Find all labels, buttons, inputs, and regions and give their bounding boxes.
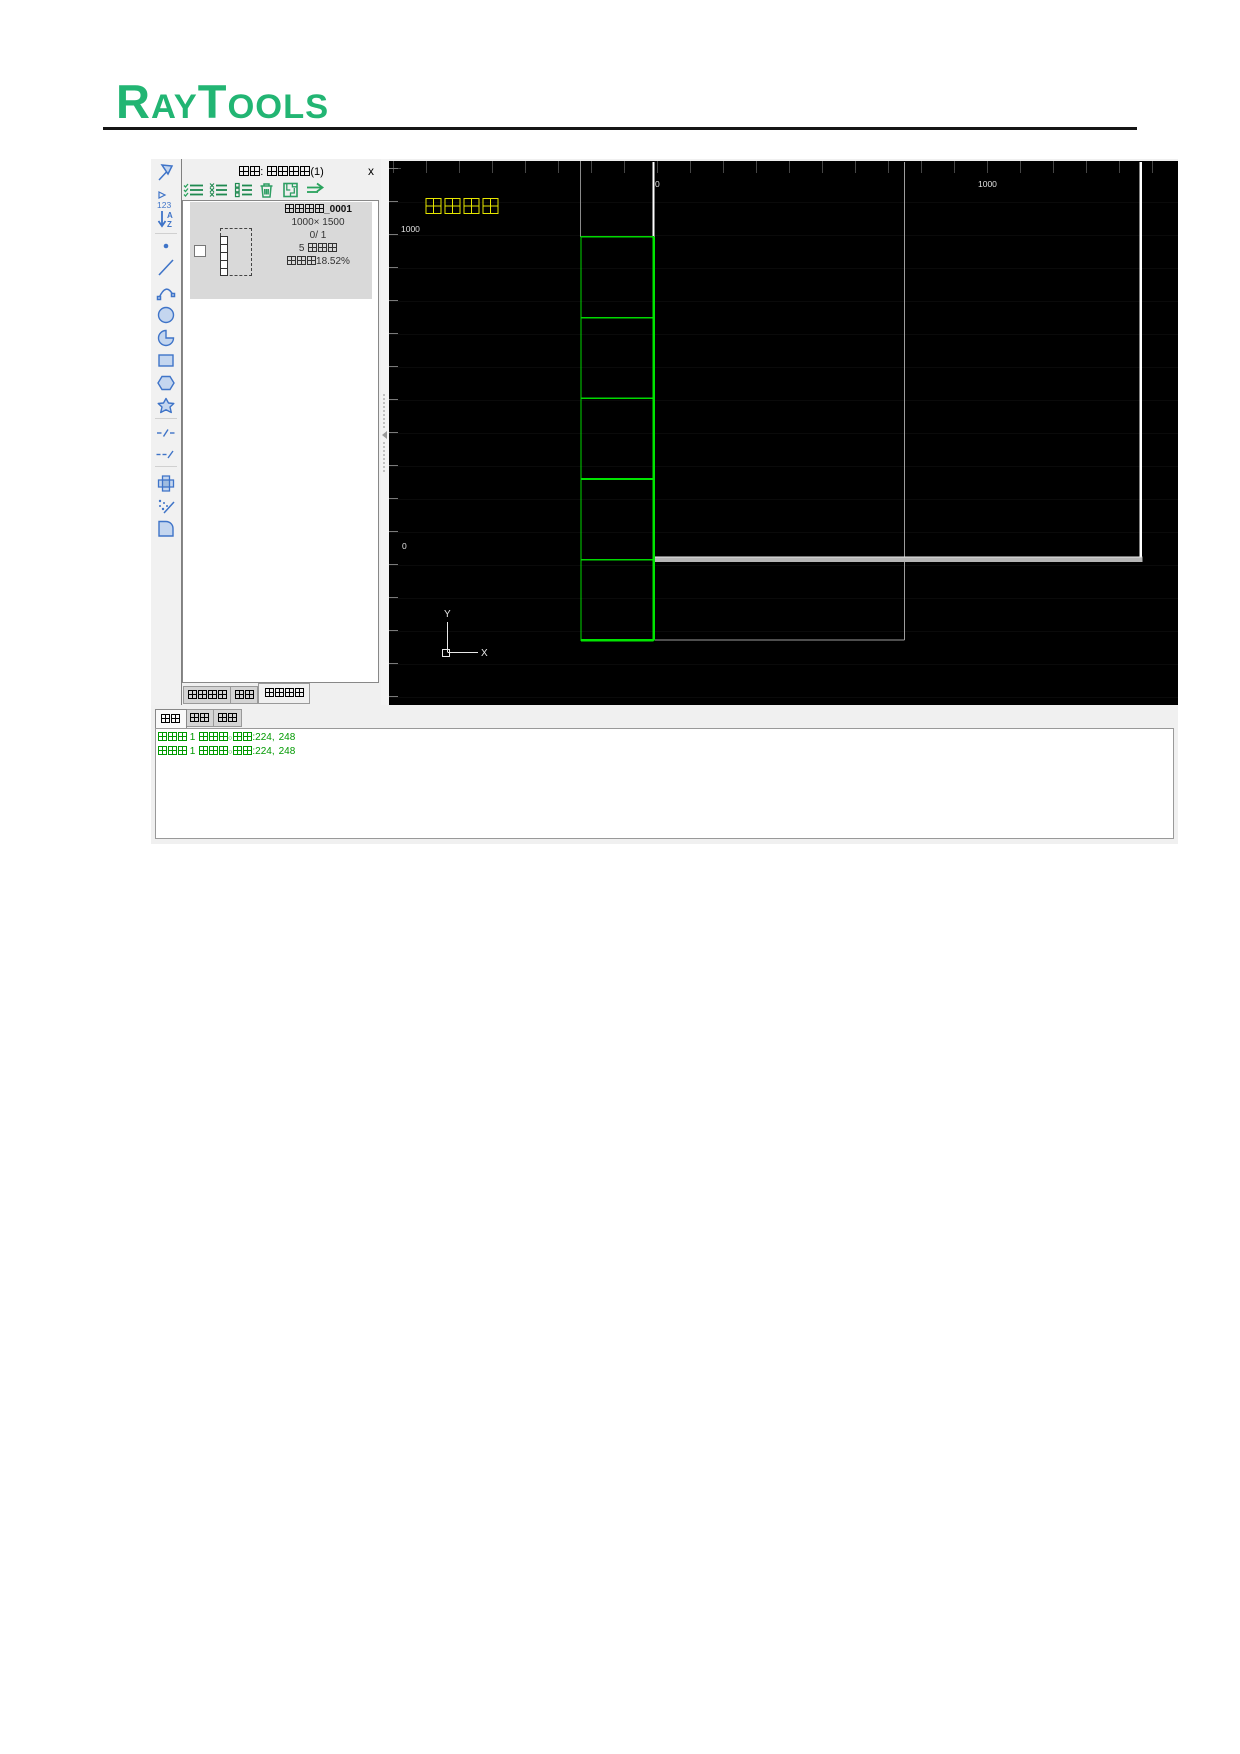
svg-text:X: X bbox=[481, 648, 488, 659]
svg-text:1000: 1000 bbox=[978, 179, 997, 189]
svg-text:0: 0 bbox=[402, 541, 407, 551]
svg-text:A: A bbox=[167, 211, 173, 220]
svg-text:0: 0 bbox=[655, 179, 660, 189]
svg-text:1000: 1000 bbox=[401, 224, 420, 234]
svg-text:123: 123 bbox=[157, 200, 171, 210]
svg-text:Y: Y bbox=[444, 609, 451, 620]
svg-text:Z: Z bbox=[167, 220, 172, 229]
